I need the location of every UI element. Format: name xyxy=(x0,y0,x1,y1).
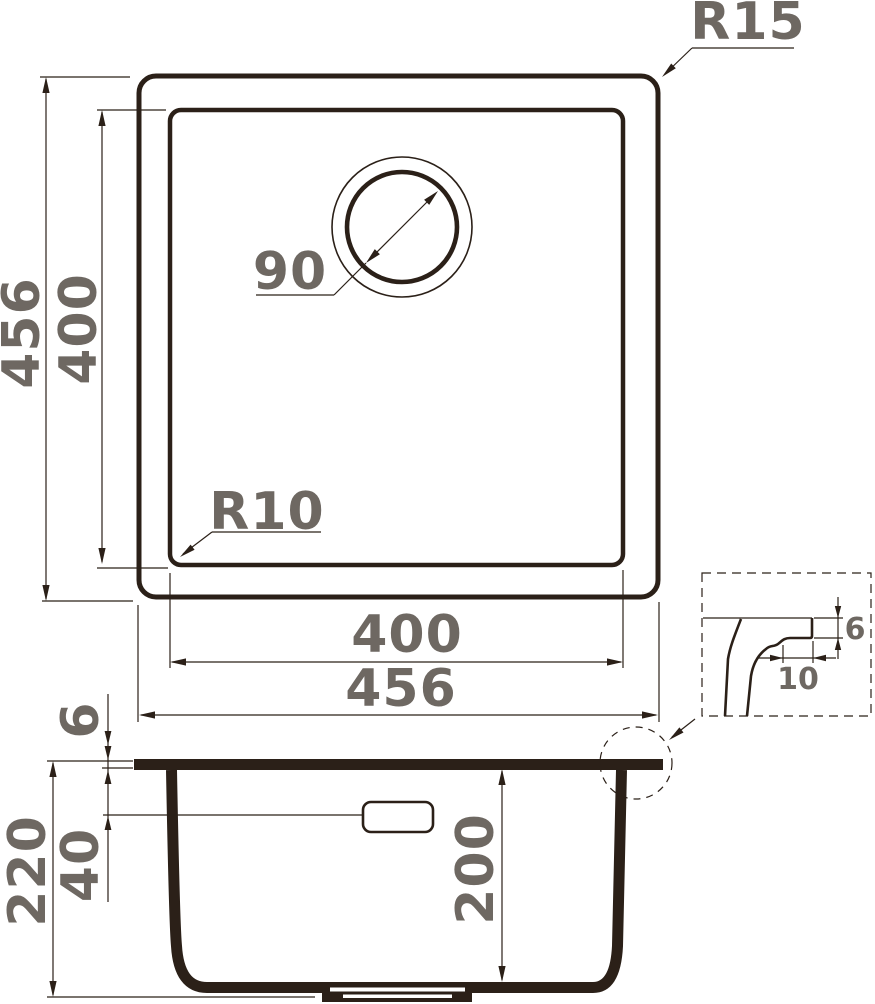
callout-inner-radius: R10 xyxy=(180,482,325,557)
dim-top-view-vertical: 456 400 xyxy=(0,77,168,601)
top-view: 90 R15 R10 xyxy=(139,0,806,597)
callout-outer-radius: R15 xyxy=(662,0,806,77)
inner-height-label: 400 xyxy=(49,273,109,385)
dim-section: 220 6 40 200 xyxy=(0,694,506,997)
drain-diameter-label: 90 xyxy=(253,242,327,302)
section-rim-flange xyxy=(134,759,663,770)
drawing-canvas: 90 R15 R10 456 400 xyxy=(0,0,875,1004)
outer-height-label: 456 xyxy=(0,277,52,389)
outer-width-label: 456 xyxy=(345,659,457,719)
dim-top-view-horizontal: 400 456 xyxy=(138,570,659,722)
inner-width-label: 400 xyxy=(351,605,463,665)
overflow-opening xyxy=(363,802,433,832)
dim-detail-edge-depth: 10 xyxy=(757,641,836,697)
overall-depth-label: 220 xyxy=(0,815,58,927)
section-view xyxy=(103,727,672,1002)
rim-thickness-label: 6 xyxy=(51,701,111,738)
dim-detail-edge-height: 6 xyxy=(814,597,865,659)
detail-edge-height-label: 6 xyxy=(845,612,866,647)
dim-drain-diameter: 90 xyxy=(253,191,438,302)
overflow-offset-label: 40 xyxy=(51,828,111,902)
sink-technical-drawing: 90 R15 R10 456 400 xyxy=(0,0,875,1004)
inner-depth-label: 200 xyxy=(446,813,506,925)
section-drain-fitting xyxy=(322,983,472,1002)
inner-corner-radius-label: R10 xyxy=(209,482,324,542)
detail-view: 6 10 xyxy=(669,573,871,740)
outer-corner-radius-label: R15 xyxy=(690,0,805,52)
detail-edge-depth-label: 10 xyxy=(777,662,819,697)
